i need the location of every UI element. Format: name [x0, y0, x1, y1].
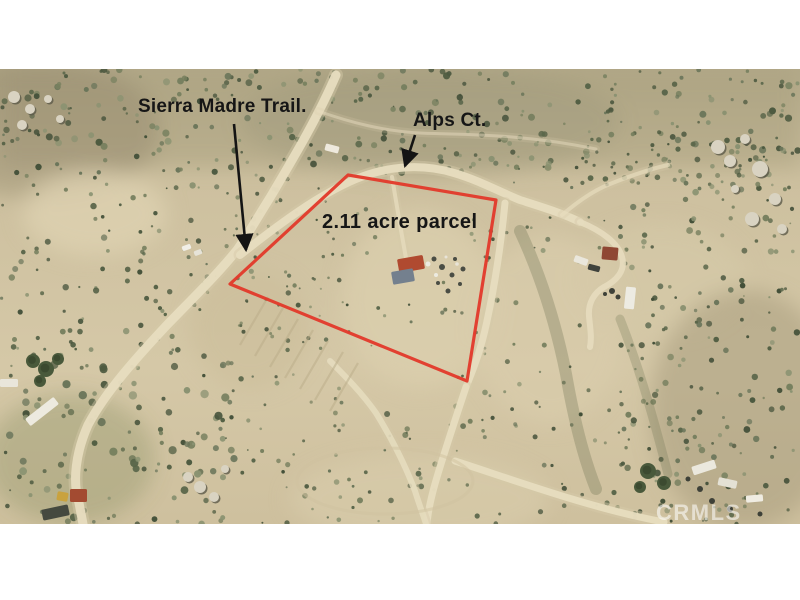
trailer-west	[0, 379, 18, 387]
crmls-watermark: CRMLS	[656, 500, 742, 524]
parcel-size-label: 2.11 acre parcel	[322, 211, 477, 234]
equipment-yellow	[56, 491, 68, 502]
street-label-alps-ct: Alps Ct.	[413, 110, 486, 132]
trailer-se-3	[746, 494, 764, 502]
aerial-scene	[0, 69, 800, 524]
shed-southwest	[70, 489, 87, 502]
photo-frame: Sierra Madre Trail. Alps Ct. 2.11 acre p…	[0, 0, 800, 600]
street-label-sierra-madre-trail: Sierra Madre Trail.	[138, 96, 307, 118]
aerial-photo: Sierra Madre Trail. Alps Ct. 2.11 acre p…	[0, 69, 800, 524]
neighbor-shack	[601, 246, 618, 260]
